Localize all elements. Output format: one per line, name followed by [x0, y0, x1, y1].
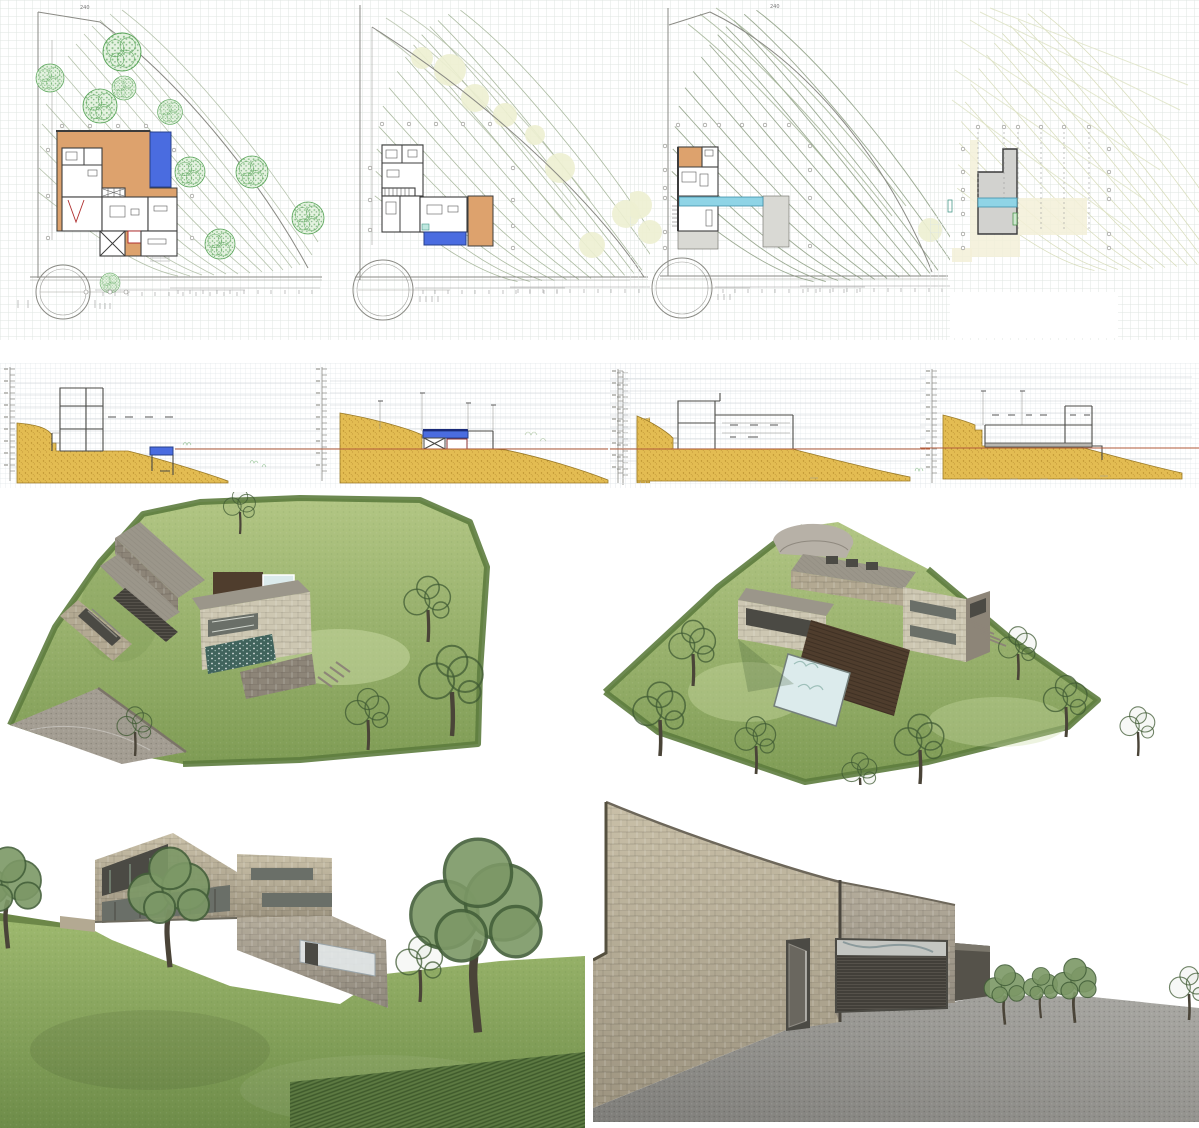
pool-section	[150, 447, 173, 455]
aerial-view-from-west	[0, 492, 585, 785]
garden-perspective	[0, 790, 585, 1128]
window-strip	[251, 868, 313, 880]
terrace-door	[305, 942, 318, 966]
orange-room	[678, 147, 702, 167]
section-d	[920, 363, 1199, 488]
deck-right	[763, 196, 789, 247]
aerial-view-from-east	[598, 492, 1199, 785]
roof-pool-section	[423, 431, 468, 438]
section-b	[330, 363, 650, 488]
green-vent	[1013, 213, 1017, 225]
section-c	[610, 363, 930, 488]
blank-patch	[950, 292, 1118, 338]
site-plan-upper-level: 240	[0, 0, 330, 340]
site-plan-lower-level: 240	[630, 0, 950, 340]
entry-door	[786, 938, 810, 1031]
section-a	[0, 363, 330, 488]
contour-label: 240	[770, 4, 780, 10]
entrance-wall-perspective	[593, 790, 1199, 1128]
contour-label: 240	[80, 5, 90, 11]
pool	[424, 232, 466, 245]
skylight-strip	[978, 198, 1017, 207]
pool-strip	[679, 197, 763, 206]
patio	[468, 196, 493, 246]
site-plan-main-level	[330, 0, 650, 340]
window-strip	[262, 893, 332, 907]
deck-lower	[678, 231, 718, 249]
garage-grille	[835, 938, 948, 1013]
pool	[150, 132, 171, 187]
plan-grid	[330, 0, 650, 340]
architectural-presentation-sheet: 240	[0, 0, 1199, 1128]
roof-plan	[930, 0, 1199, 340]
